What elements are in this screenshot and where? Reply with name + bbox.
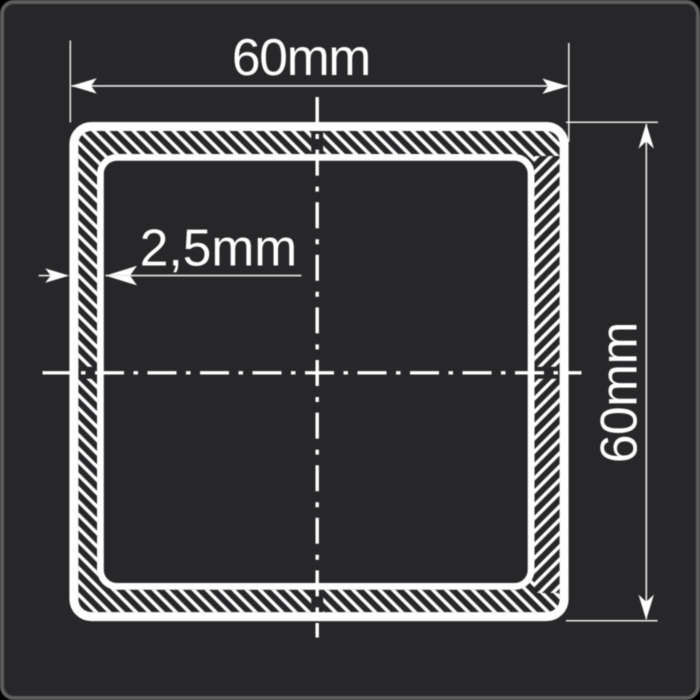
svg-text:2,5mm: 2,5mm (140, 218, 297, 276)
svg-text:60mm: 60mm (232, 28, 370, 86)
svg-text:60mm: 60mm (590, 322, 648, 463)
